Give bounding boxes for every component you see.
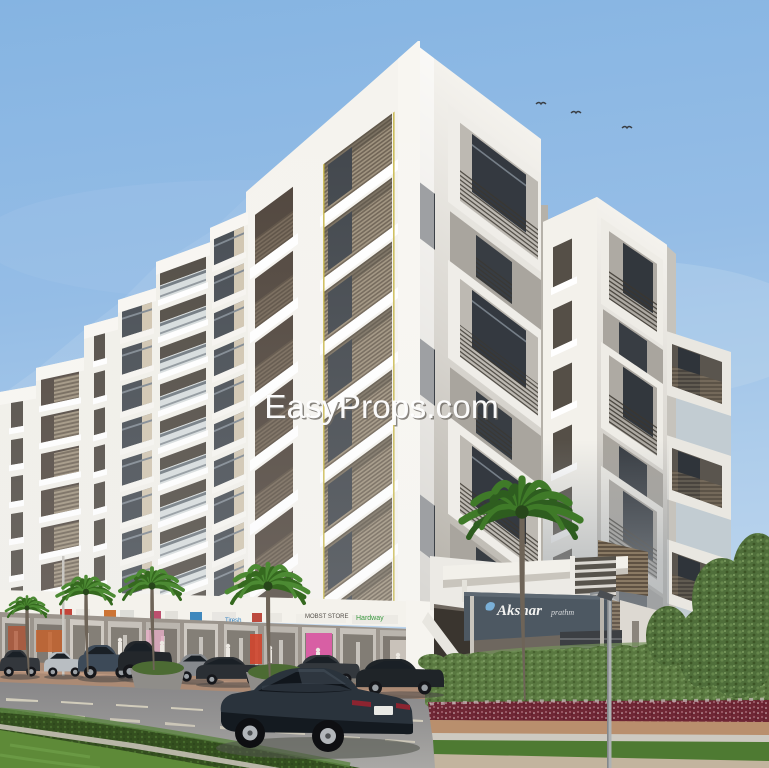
svg-text:Akshar: Akshar bbox=[496, 603, 542, 619]
svg-text:EasyProps.com: EasyProps.com bbox=[264, 389, 499, 426]
svg-text:Hardway: Hardway bbox=[356, 615, 384, 622]
svg-text:MOBST STORE: MOBST STORE bbox=[305, 614, 348, 620]
svg-text:prathm: prathm bbox=[550, 608, 574, 617]
